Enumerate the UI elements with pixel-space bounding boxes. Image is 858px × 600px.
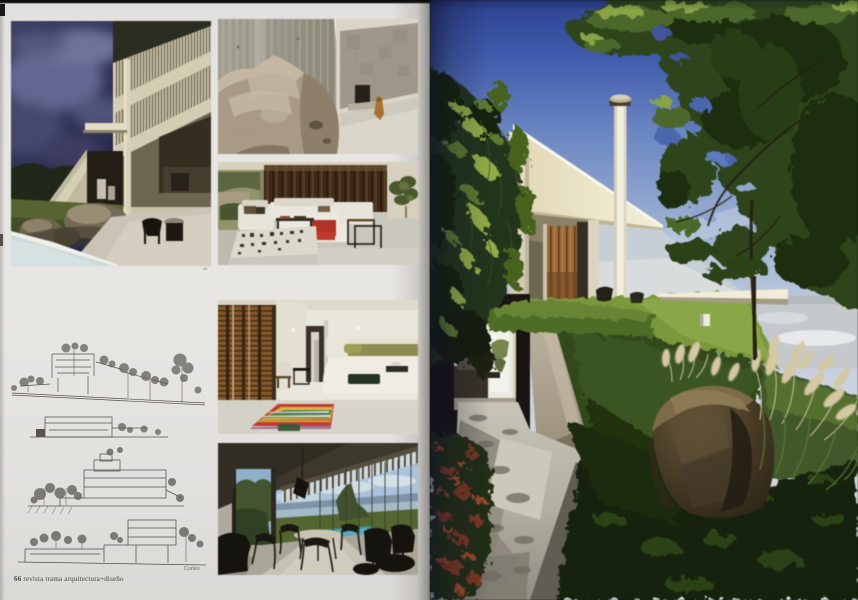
svg-text:Cortes: Cortes (184, 566, 200, 572)
